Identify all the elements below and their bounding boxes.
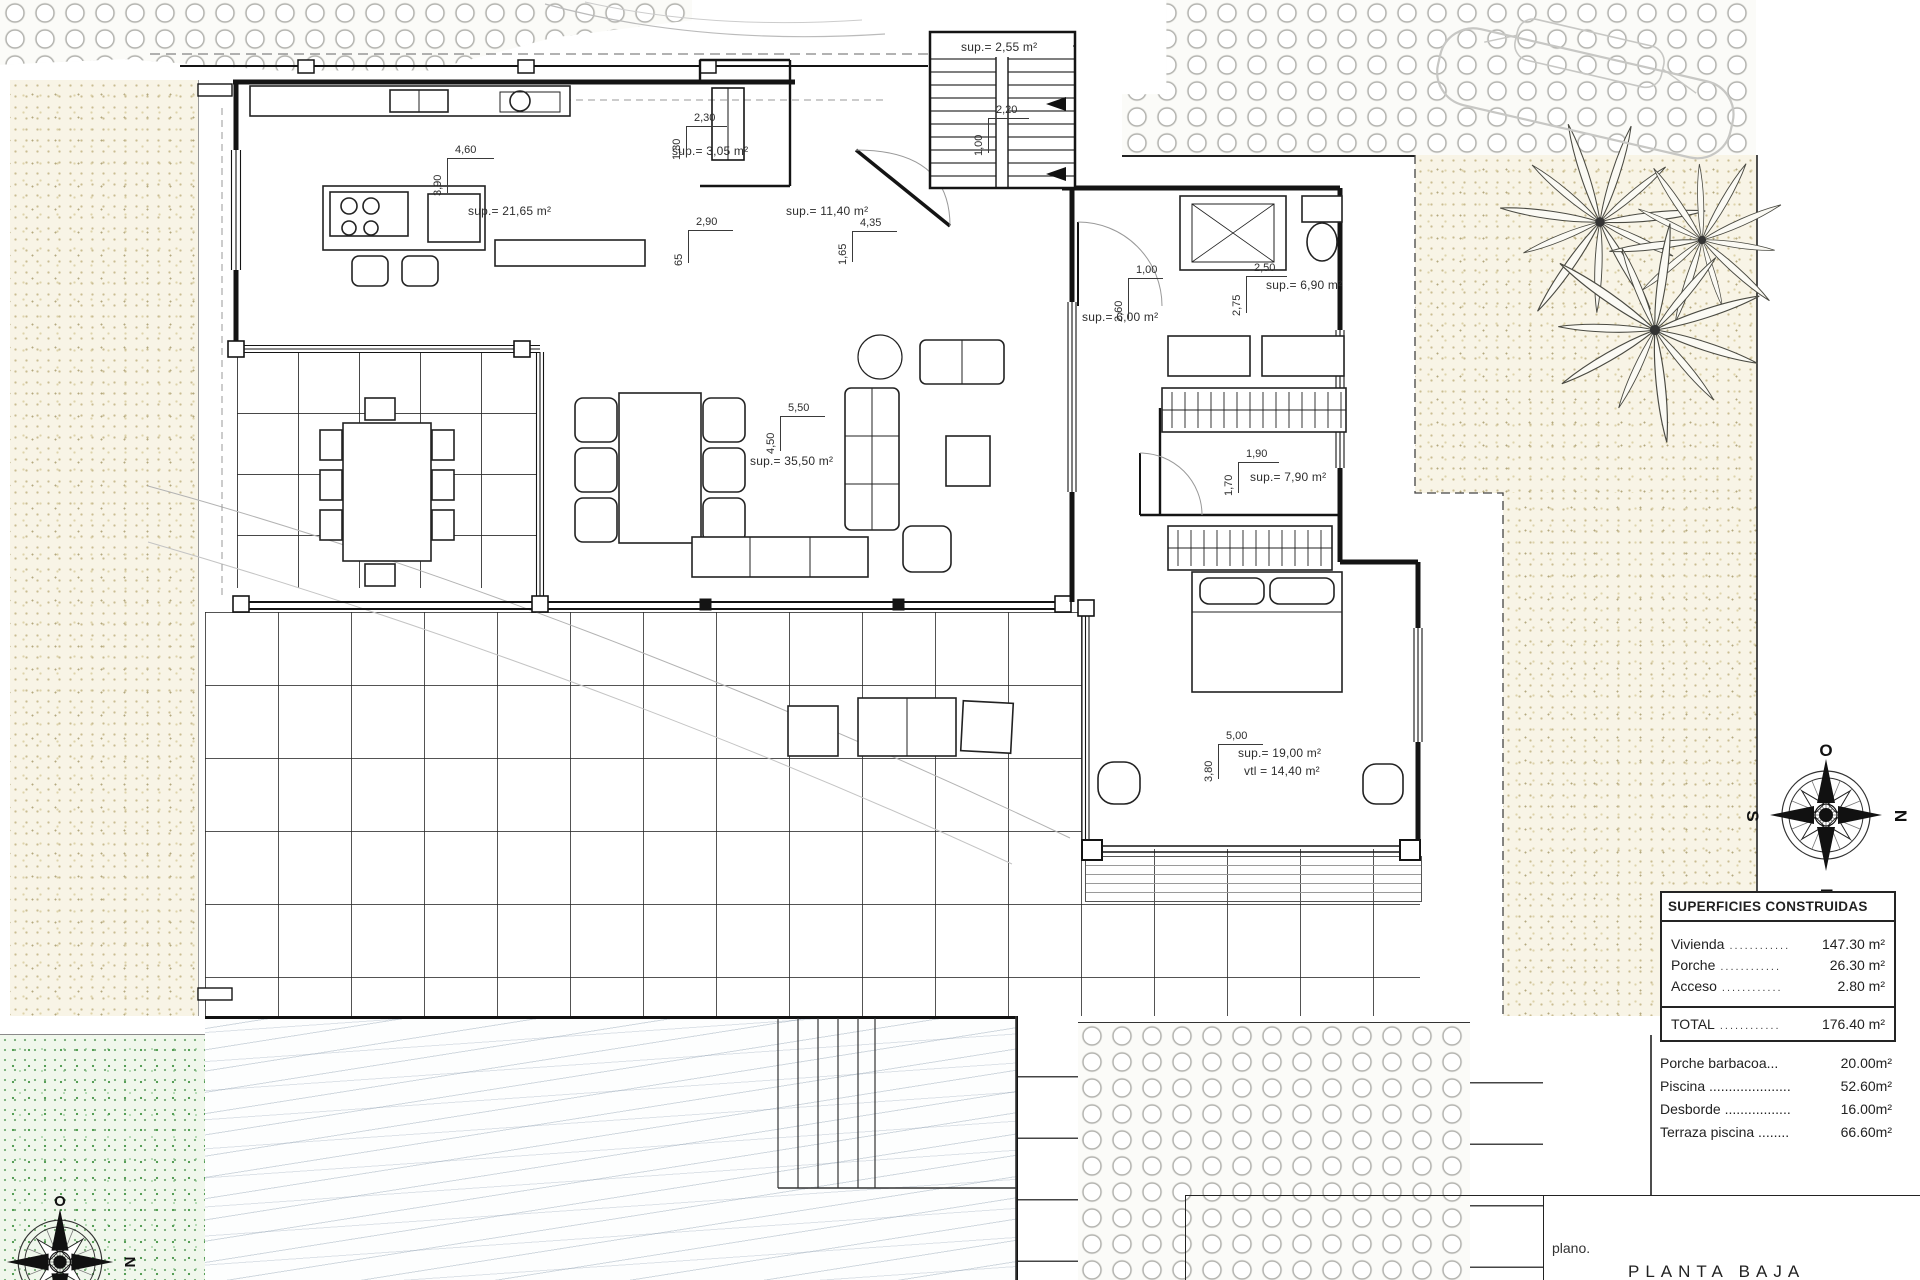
dimension-stairs: 2,201,00	[988, 118, 1029, 153]
dimension-bedroom: 5,003,80	[1218, 744, 1263, 779]
table-row: Porche ............ 26.30 m²	[1671, 957, 1885, 973]
sideboard	[495, 240, 645, 266]
extra-row: Terraza piscina ........ 66.60m²	[1660, 1124, 1892, 1140]
extra-row: Porche barbacoa... 20.00m²	[1660, 1055, 1892, 1071]
extra-row: Piscina ..................... 52.60m²	[1660, 1078, 1892, 1094]
dimension-mid: 2,9065	[688, 230, 733, 263]
compass-rose: O N S	[0, 1193, 138, 1280]
title-block-divider	[1185, 1195, 1186, 1280]
dimension-living: 5,504,50	[780, 416, 825, 451]
bedroom-chair	[1363, 764, 1403, 804]
cabinet	[1168, 336, 1250, 376]
svg-text:O: O	[54, 1193, 66, 1210]
living-area-label: sup.= 35,50 m²	[750, 454, 833, 468]
table-row: Acceso ............ 2.80 m²	[1671, 978, 1885, 994]
cabinet	[1262, 336, 1344, 376]
kitchen-counter	[250, 86, 570, 116]
plano-label: plano.	[1552, 1240, 1590, 1256]
dimension-entry: 4,351,65	[852, 231, 897, 262]
dimension-hall: 1,002,60	[1128, 278, 1163, 319]
bar-stool	[352, 256, 388, 286]
compass-west-label: O	[1819, 741, 1832, 760]
title-block-divider	[1543, 1195, 1544, 1280]
dimension-dressing2: 1,901,70	[1238, 462, 1279, 493]
compass-south-label: S	[1743, 810, 1762, 821]
floor-plan-page: O N E S O N S sup.= 2,55 m² sup.= 3,05 m…	[0, 0, 1920, 1280]
kitchen-area-label: sup.= 21,65 m²	[468, 204, 551, 218]
bar-stool	[402, 256, 438, 286]
bedroom-chair	[1098, 762, 1140, 804]
dining-table-set	[575, 393, 745, 543]
dimension-pantry: 2,301,30	[686, 126, 727, 157]
porch-dining-set	[320, 398, 454, 586]
entry-area-label: sup.= 11,40 m²	[786, 204, 868, 218]
extra-surfaces-list: Porche barbacoa... 20.00m² Piscina .....…	[1660, 1048, 1892, 1147]
extra-row: Desborde ................. 16.00m²	[1660, 1101, 1892, 1117]
stairs-area-label: sup.= 2,55 m²	[958, 40, 1040, 54]
table-header: SUPERFICIES CONSTRUIDAS	[1662, 893, 1894, 922]
double-bed	[1192, 572, 1342, 692]
floor-plan-drawing: O N E S O N S	[0, 0, 1920, 1280]
pool-steps	[778, 1016, 1016, 1280]
wardrobe	[1168, 526, 1332, 570]
svg-text:N: N	[121, 1257, 138, 1268]
car-sketch	[1430, 0, 1745, 165]
compass-north-label: N	[1891, 810, 1910, 822]
plan-name: PLANTA BAJA	[1628, 1262, 1805, 1280]
table-total-row: TOTAL ............ 176.40 m²	[1662, 1006, 1894, 1040]
dimension-dressing: 2,502,75	[1246, 276, 1287, 313]
shower	[1180, 196, 1286, 270]
wardrobe	[1162, 388, 1346, 432]
table-row: Vivienda ............ 147.30 m²	[1671, 936, 1885, 952]
built-surfaces-table: SUPERFICIES CONSTRUIDAS Vivienda .......…	[1660, 891, 1896, 1042]
compass-rose: O N E S	[1743, 741, 1910, 900]
title-block-divider	[1185, 1195, 1920, 1196]
dimension-kitchen: 4,603,90	[447, 158, 494, 193]
